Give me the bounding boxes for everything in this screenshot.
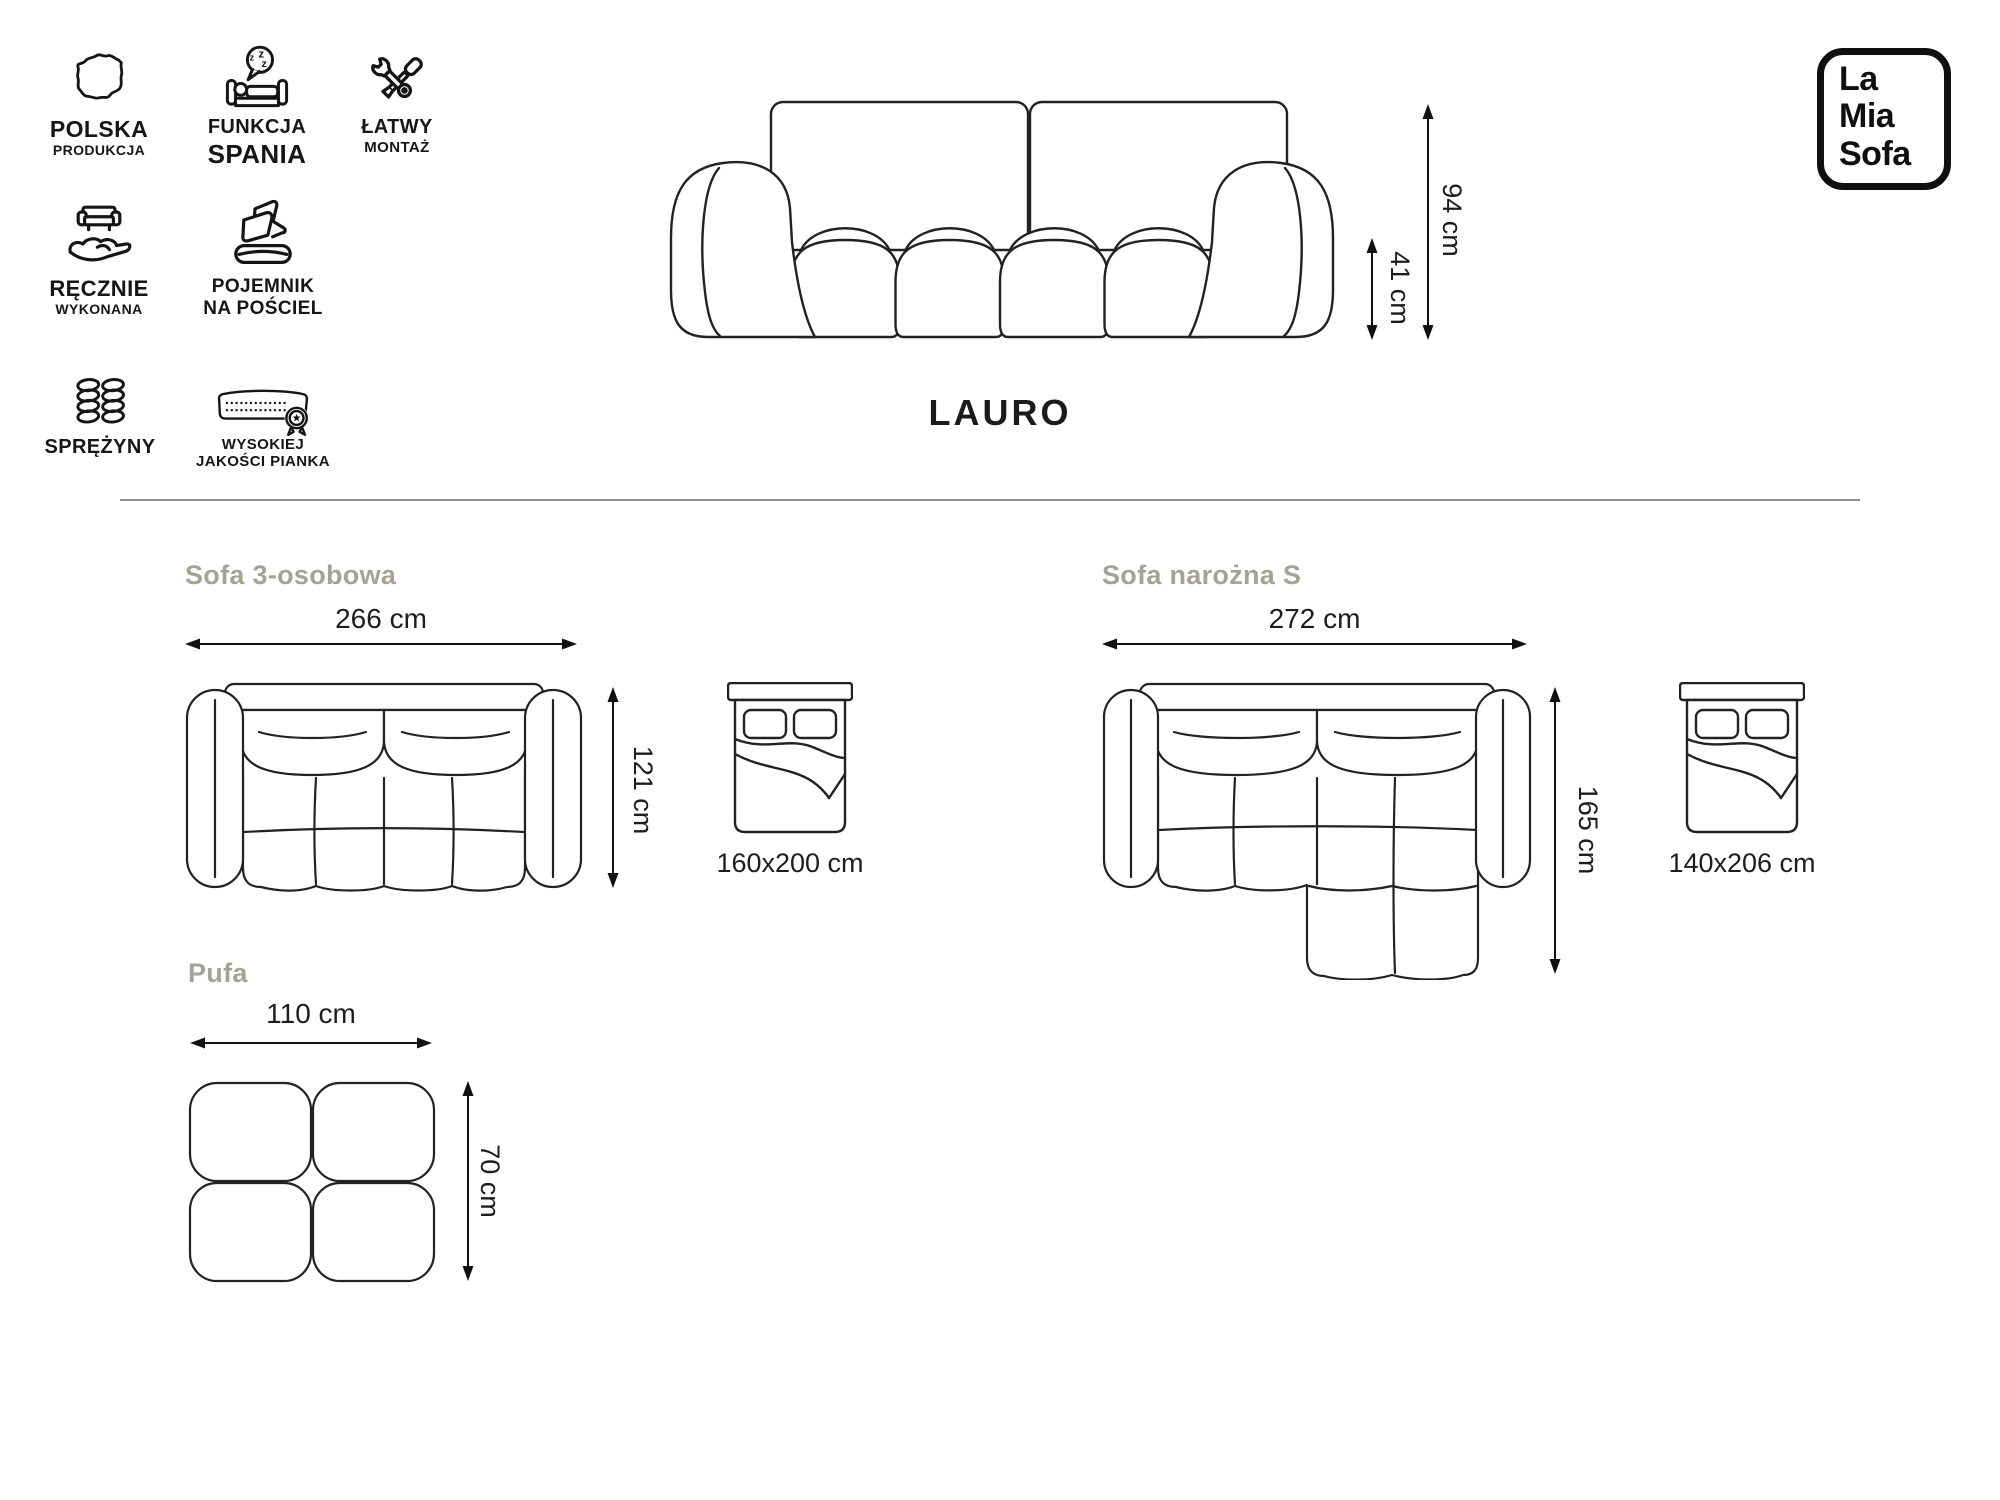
variant-title-pufa: Pufa xyxy=(188,958,248,989)
svg-text:z: z xyxy=(261,59,266,70)
depth-label: 121 cm xyxy=(628,730,658,850)
bed-icon xyxy=(727,682,853,836)
depth-label: 165 cm xyxy=(1573,770,1603,890)
feature-polska-produkcja: POLSKA PRODUKCJA xyxy=(25,38,173,159)
handmade-icon xyxy=(59,192,139,276)
logo-line: Mia xyxy=(1839,98,1944,135)
dimension-arrow-width xyxy=(190,1036,432,1050)
feature-funkcja-spania: z z z FUNKCJA SPANIA xyxy=(183,38,331,170)
feature-sublabel: MONTAŻ xyxy=(364,139,429,157)
width-label: 110 cm xyxy=(190,998,432,1030)
feature-label: POJEMNIK xyxy=(212,276,314,298)
quality-foam-icon xyxy=(195,372,331,436)
variant-title-sofa-3-osobowa: Sofa 3-osobowa xyxy=(185,560,396,591)
assembly-tools-icon xyxy=(364,38,430,116)
sleeping-area-label: 160x200 cm xyxy=(700,848,880,879)
dimension-arrow-seat-height xyxy=(1365,238,1379,340)
feature-latwy-montaz: ŁATWY MONTAŻ xyxy=(338,38,456,157)
feature-label: WYSOKIEJ xyxy=(222,436,304,453)
total-height-label: 94 cm xyxy=(1437,160,1467,280)
feature-recznie-wykonana: RĘCZNIE WYKONANA xyxy=(25,192,173,318)
logo-line: La xyxy=(1839,61,1944,98)
dimension-arrow-width xyxy=(185,637,577,651)
springs-icon xyxy=(67,372,133,436)
svg-text:z: z xyxy=(250,53,255,63)
feature-sublabel: SPANIA xyxy=(208,139,307,170)
corner-sofa-top-view-drawing xyxy=(1102,682,1532,980)
feature-sublabel: NA POŚCIEL xyxy=(203,298,322,321)
sleep-function-icon: z z z xyxy=(219,38,295,116)
product-name: LAURO xyxy=(800,392,1200,434)
feature-sublabel: WYKONANA xyxy=(55,301,142,318)
depth-label: 70 cm xyxy=(475,1121,505,1241)
section-divider xyxy=(120,499,1860,501)
bed-icon xyxy=(1679,682,1805,836)
poland-map-icon xyxy=(64,38,134,116)
bedding-storage-icon xyxy=(223,192,303,276)
dimension-arrow-width xyxy=(1102,637,1527,651)
feature-sprezyny: SPRĘŻYNY xyxy=(25,372,175,459)
sleeping-area-label: 140x206 cm xyxy=(1652,848,1832,879)
feature-label: POLSKA xyxy=(50,116,148,142)
seat-height-label: 41 cm xyxy=(1385,228,1415,348)
pouf-top-view-drawing xyxy=(187,1080,437,1284)
width-label: 266 cm xyxy=(185,603,577,635)
feature-label: RĘCZNIE xyxy=(49,276,148,301)
width-label: 272 cm xyxy=(1102,603,1527,635)
sofa-front-view-drawing xyxy=(663,90,1341,340)
brand-logo: La Mia Sofa xyxy=(1817,48,1951,190)
feature-wysokiej-jakosci-pianka: WYSOKIEJ JAKOŚCI PIANKA xyxy=(183,372,343,471)
feature-label: SPRĘŻYNY xyxy=(44,436,155,459)
sofa-3-seater-top-view-drawing xyxy=(185,682,583,895)
dimension-arrow-depth xyxy=(461,1081,475,1281)
product-spec-sheet: POLSKA PRODUKCJA z z z FUNKCJA SPANIA xyxy=(0,0,2000,1500)
feature-sublabel: JAKOŚCI PIANKA xyxy=(196,453,330,471)
feature-pojemnik-na-posciel: POJEMNIK NA POŚCIEL xyxy=(189,192,337,321)
feature-label: ŁATWY xyxy=(361,116,433,139)
dimension-arrow-depth xyxy=(606,687,620,888)
logo-line: Sofa xyxy=(1839,136,1944,173)
feature-sublabel: PRODUKCJA xyxy=(53,142,145,159)
dimension-arrow-depth xyxy=(1548,687,1562,974)
variant-title-sofa-narozna-s: Sofa narożna S xyxy=(1102,560,1301,591)
feature-label: FUNKCJA xyxy=(208,116,306,139)
dimension-arrow-total-height xyxy=(1421,104,1435,340)
